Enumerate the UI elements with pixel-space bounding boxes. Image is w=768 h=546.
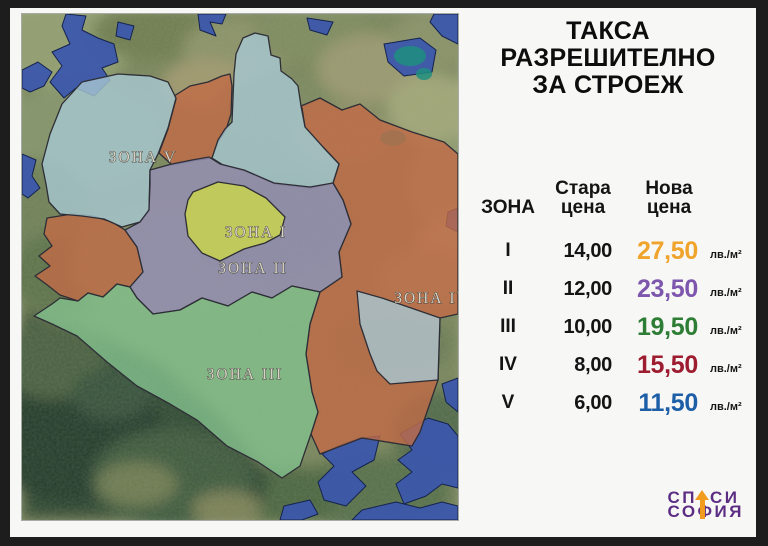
zone-number: I	[478, 240, 538, 262]
zone-number: III	[478, 316, 538, 338]
column-header-old-price: Стара цена	[538, 179, 628, 217]
table-row: I 14,00 27,50 лв./м²	[478, 232, 756, 270]
table-header-row: ЗОНА Стара цена Нова цена	[478, 179, 756, 217]
table-row: III 10,00 19,50 лв./м²	[478, 308, 756, 346]
table-row: II 12,00 23,50 лв./м²	[478, 270, 756, 308]
old-price: 8,00	[538, 354, 628, 377]
infographic-card: ЗОНА V ЗОНА I ЗОНА II ЗОНА III ЗОНА IV Т…	[10, 8, 756, 537]
column-header-new-price: Нова цена	[628, 179, 710, 217]
spasi-sofia-logo: СПСИ СОФИЯ	[667, 491, 744, 519]
price-unit: лв./м²	[710, 325, 766, 337]
zone-number: IV	[478, 354, 538, 376]
zone-number: II	[478, 278, 538, 300]
new-price: 27,50	[628, 237, 710, 266]
zone-number: V	[478, 392, 538, 414]
old-price: 12,00	[538, 278, 628, 301]
price-unit: лв./м²	[710, 287, 766, 299]
old-price: 10,00	[538, 316, 628, 339]
map-label-zone-ii: ЗОНА II	[218, 260, 288, 277]
map-label-zone-v: ЗОНА V	[109, 149, 177, 166]
price-unit: лв./м²	[710, 363, 766, 375]
logo-arrow-icon	[695, 490, 709, 520]
new-price: 11,50	[628, 389, 710, 418]
price-unit: лв./м²	[710, 249, 766, 261]
lake	[416, 68, 432, 80]
price-unit: лв./м²	[710, 401, 766, 413]
fee-table-body: I 14,00 27,50 лв./м² II 12,00 23,50 лв./…	[460, 232, 756, 422]
table-row: IV 8,00 15,50 лв./м²	[478, 346, 756, 384]
new-price: 23,50	[628, 275, 710, 304]
map-label-zone-iv: ЗОНА IV	[394, 290, 458, 307]
fee-table-panel: ТАКСА РАЗРЕШИТЕЛНО ЗА СТРОЕЖ ЗОНА Стара …	[460, 8, 756, 537]
new-price: 15,50	[628, 351, 710, 380]
map-label-zone-i: ЗОНА I	[225, 224, 287, 241]
old-price: 6,00	[538, 392, 628, 415]
column-header-zone: ЗОНА	[478, 198, 538, 217]
table-row: V 6,00 11,50 лв./м²	[478, 384, 756, 422]
lake	[394, 46, 426, 66]
sofia-zones-satellite-map: ЗОНА V ЗОНА I ЗОНА II ЗОНА III ЗОНА IV	[22, 14, 458, 520]
page-title: ТАКСА РАЗРЕШИТЕЛНО ЗА СТРОЕЖ	[460, 8, 756, 99]
map-label-zone-iii: ЗОНА III	[207, 366, 284, 383]
new-price: 19,50	[628, 313, 710, 342]
old-price: 14,00	[538, 240, 628, 263]
